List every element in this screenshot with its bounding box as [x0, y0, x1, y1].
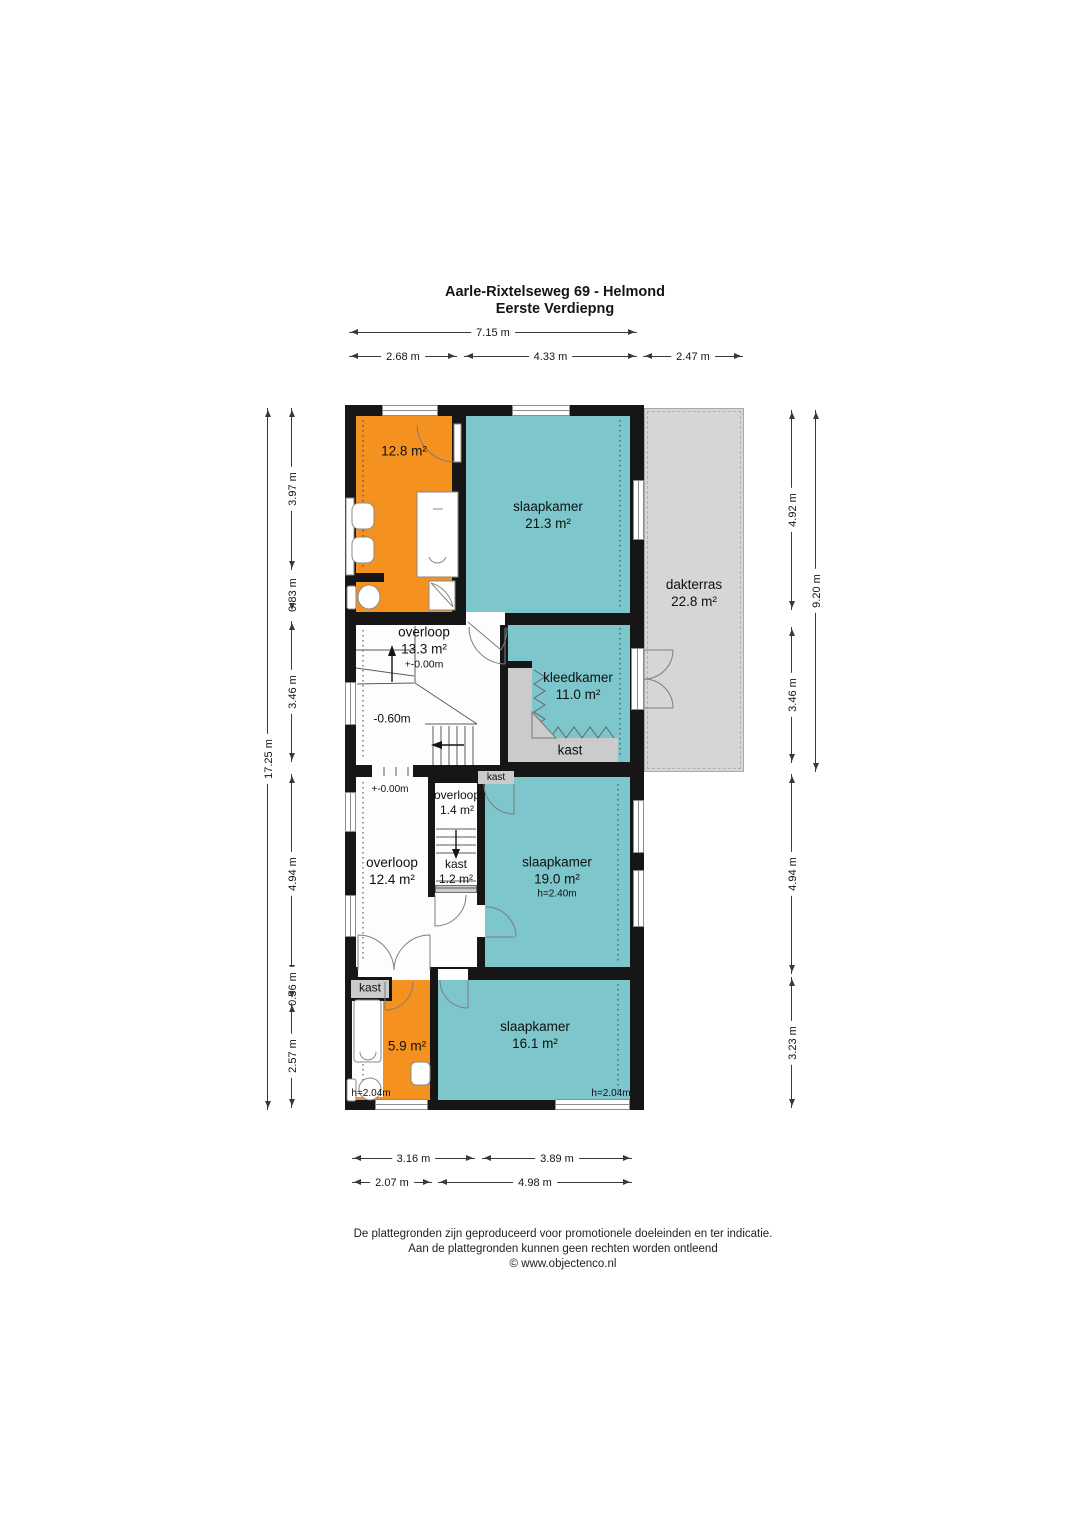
dim-bottom-r2-seg-2: 4.98 m — [438, 1182, 632, 1183]
plan-title: Aarle-Rixtelseweg 69 - Helmond Eerste Ve… — [445, 284, 665, 318]
dim-bottom-r1-seg-1: 3.16 m — [352, 1158, 475, 1159]
bedroom-middle-door-opening — [477, 905, 485, 937]
dim-bottom-r2-seg-1: 2.07 m — [352, 1182, 432, 1183]
label-closet-nook: kast — [487, 772, 505, 785]
window-left-2 — [345, 792, 356, 832]
label-landing-main: overloop 13.3 m² +-0.00m — [398, 625, 450, 672]
label-roof-terrace: dakterras 22.8 m² — [666, 577, 722, 611]
label-bathroom-bottom: 5.9 m² — [388, 1039, 426, 1056]
wall-stub-dressing — [508, 661, 532, 668]
plan-title-floor: Eerste Verdiepng — [445, 301, 665, 318]
disclaimer-line2: Aan de plattegronden kunnen geen rechten… — [354, 1242, 773, 1257]
label-bedroom-middle: slaapkamer 19.0 m² h=2.40m — [522, 855, 592, 900]
label-dressing-closet: kast — [558, 743, 583, 760]
dim-left-seg-6: 2.57 m — [291, 1003, 292, 1108]
dim-top-seg-3: 2.47 m — [643, 356, 743, 357]
label-stair-closet: kast 1.2 m² — [439, 857, 473, 887]
label-bathroom-bottom-height: h=2.04m — [351, 1088, 390, 1101]
dim-top-seg-1: 2.68 m — [349, 356, 457, 357]
window-bottom-1 — [375, 1099, 428, 1110]
disclaimer-line1: De plattegronden zijn geproduceerd voor … — [354, 1227, 773, 1242]
dim-left-total: 17.25 m — [267, 408, 268, 1110]
label-bedroom-bottom: slaapkamer 16.1 m² — [500, 1019, 570, 1053]
dim-left-seg-5: 0.56 m — [291, 977, 292, 1000]
floorplan-page: Aarle-Rixtelseweg 69 - Helmond Eerste Ve… — [0, 0, 1080, 1527]
dim-right-total: 9.20 m — [815, 410, 816, 772]
window-bottom-2 — [555, 1099, 630, 1110]
dim-right-seg-3: 4.94 m — [791, 774, 792, 974]
window-right-3 — [633, 870, 644, 927]
label-bedroom-top: slaapkamer 21.3 m² — [513, 499, 583, 533]
dim-left-seg-1: 3.97 m — [291, 408, 292, 570]
label-dressing-room: kleedkamer 11.0 m² — [543, 670, 613, 704]
label-bedroom-bottom-height: h=2.04m — [591, 1088, 630, 1101]
label-landing-lower: overloop 12.4 m² — [366, 855, 418, 889]
bedroom-bottom-door-opening — [438, 969, 468, 980]
copyright: © www.objectenco.nl — [354, 1257, 773, 1272]
label-lower-level: -0.60m — [373, 712, 410, 727]
dim-left-seg-2: 0.83 m — [291, 578, 292, 612]
dim-left-seg-4: 4.94 m — [291, 774, 292, 974]
plan-title-address: Aarle-Rixtelseweg 69 - Helmond — [445, 284, 665, 301]
window-right-2 — [633, 800, 644, 853]
dim-top-total: 7.15 m — [349, 332, 637, 333]
wall-stub-bath-top — [346, 573, 384, 582]
window-left-1 — [345, 682, 356, 725]
label-bathroom-top: 12.8 m² — [381, 444, 427, 461]
terrace-door-frame — [631, 648, 644, 710]
window-right-1 — [633, 480, 644, 540]
dim-right-seg-4: 3.23 m — [791, 977, 792, 1108]
dim-top-seg-2: 4.33 m — [464, 356, 637, 357]
dim-left-seg-3: 3.46 m — [291, 621, 292, 762]
shower-area — [352, 1000, 383, 1097]
window-left-3 — [345, 895, 356, 937]
label-landing-small: overloop 1.4 m² — [434, 788, 480, 818]
label-landing-lower-level: +-0.00m — [372, 784, 409, 797]
dim-right-seg-2: 3.46 m — [791, 627, 792, 763]
window-top-1 — [382, 405, 438, 416]
wall-above-landing-small — [435, 777, 477, 783]
step-passage — [372, 765, 413, 777]
dim-right-seg-1: 4.92 m — [791, 410, 792, 610]
dim-bottom-r1-seg-2: 3.89 m — [482, 1158, 632, 1159]
disclaimer: De plattegronden zijn geproduceerd voor … — [354, 1227, 773, 1272]
label-hall-closet: kast — [359, 981, 381, 996]
window-top-2 — [512, 405, 570, 416]
bedroom-top-door-opening — [466, 612, 505, 625]
